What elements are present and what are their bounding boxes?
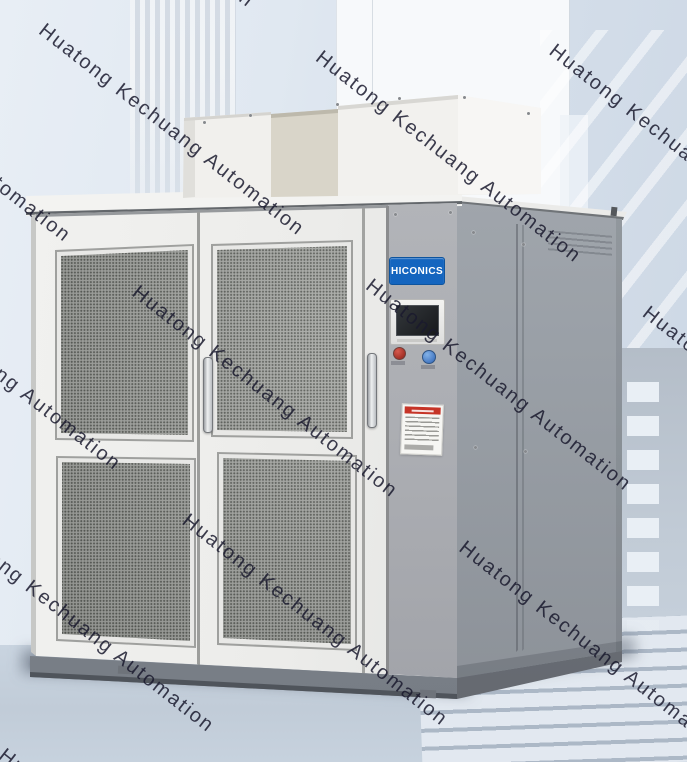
warning-label-header	[405, 406, 441, 414]
warning-label-footer	[404, 444, 433, 450]
product-photo: HICONICS Huatong Kechuang AutomationHuat…	[0, 0, 687, 762]
rivet	[527, 112, 530, 115]
door-handle-right	[367, 353, 377, 428]
red-pushbutton	[393, 347, 406, 360]
pushbutton-tag	[421, 365, 435, 369]
blue-pushbutton	[422, 350, 436, 364]
rivet	[336, 103, 339, 106]
warning-label-text-lines	[405, 416, 440, 443]
rivet	[472, 231, 475, 234]
roof-corner-bracket	[611, 207, 618, 217]
hmi-screen	[396, 305, 439, 336]
rivet	[203, 121, 206, 124]
rivet	[522, 243, 525, 246]
rivet	[463, 96, 466, 99]
base-rail-bracket	[118, 666, 134, 675]
door-handle-left	[203, 357, 213, 433]
rivet	[394, 213, 397, 216]
brand-logo: HICONICS	[389, 257, 445, 285]
background-tower-windows	[627, 382, 659, 632]
base-rail-bracket	[420, 690, 436, 699]
rivet	[474, 446, 477, 449]
hmi-display	[390, 299, 445, 345]
warning-label	[400, 403, 444, 455]
hmi-keypad	[397, 339, 437, 342]
rivet	[398, 97, 401, 100]
rivet	[524, 450, 527, 453]
rivet	[449, 211, 452, 214]
rivet	[249, 114, 252, 117]
pushbutton-tag	[391, 361, 405, 365]
